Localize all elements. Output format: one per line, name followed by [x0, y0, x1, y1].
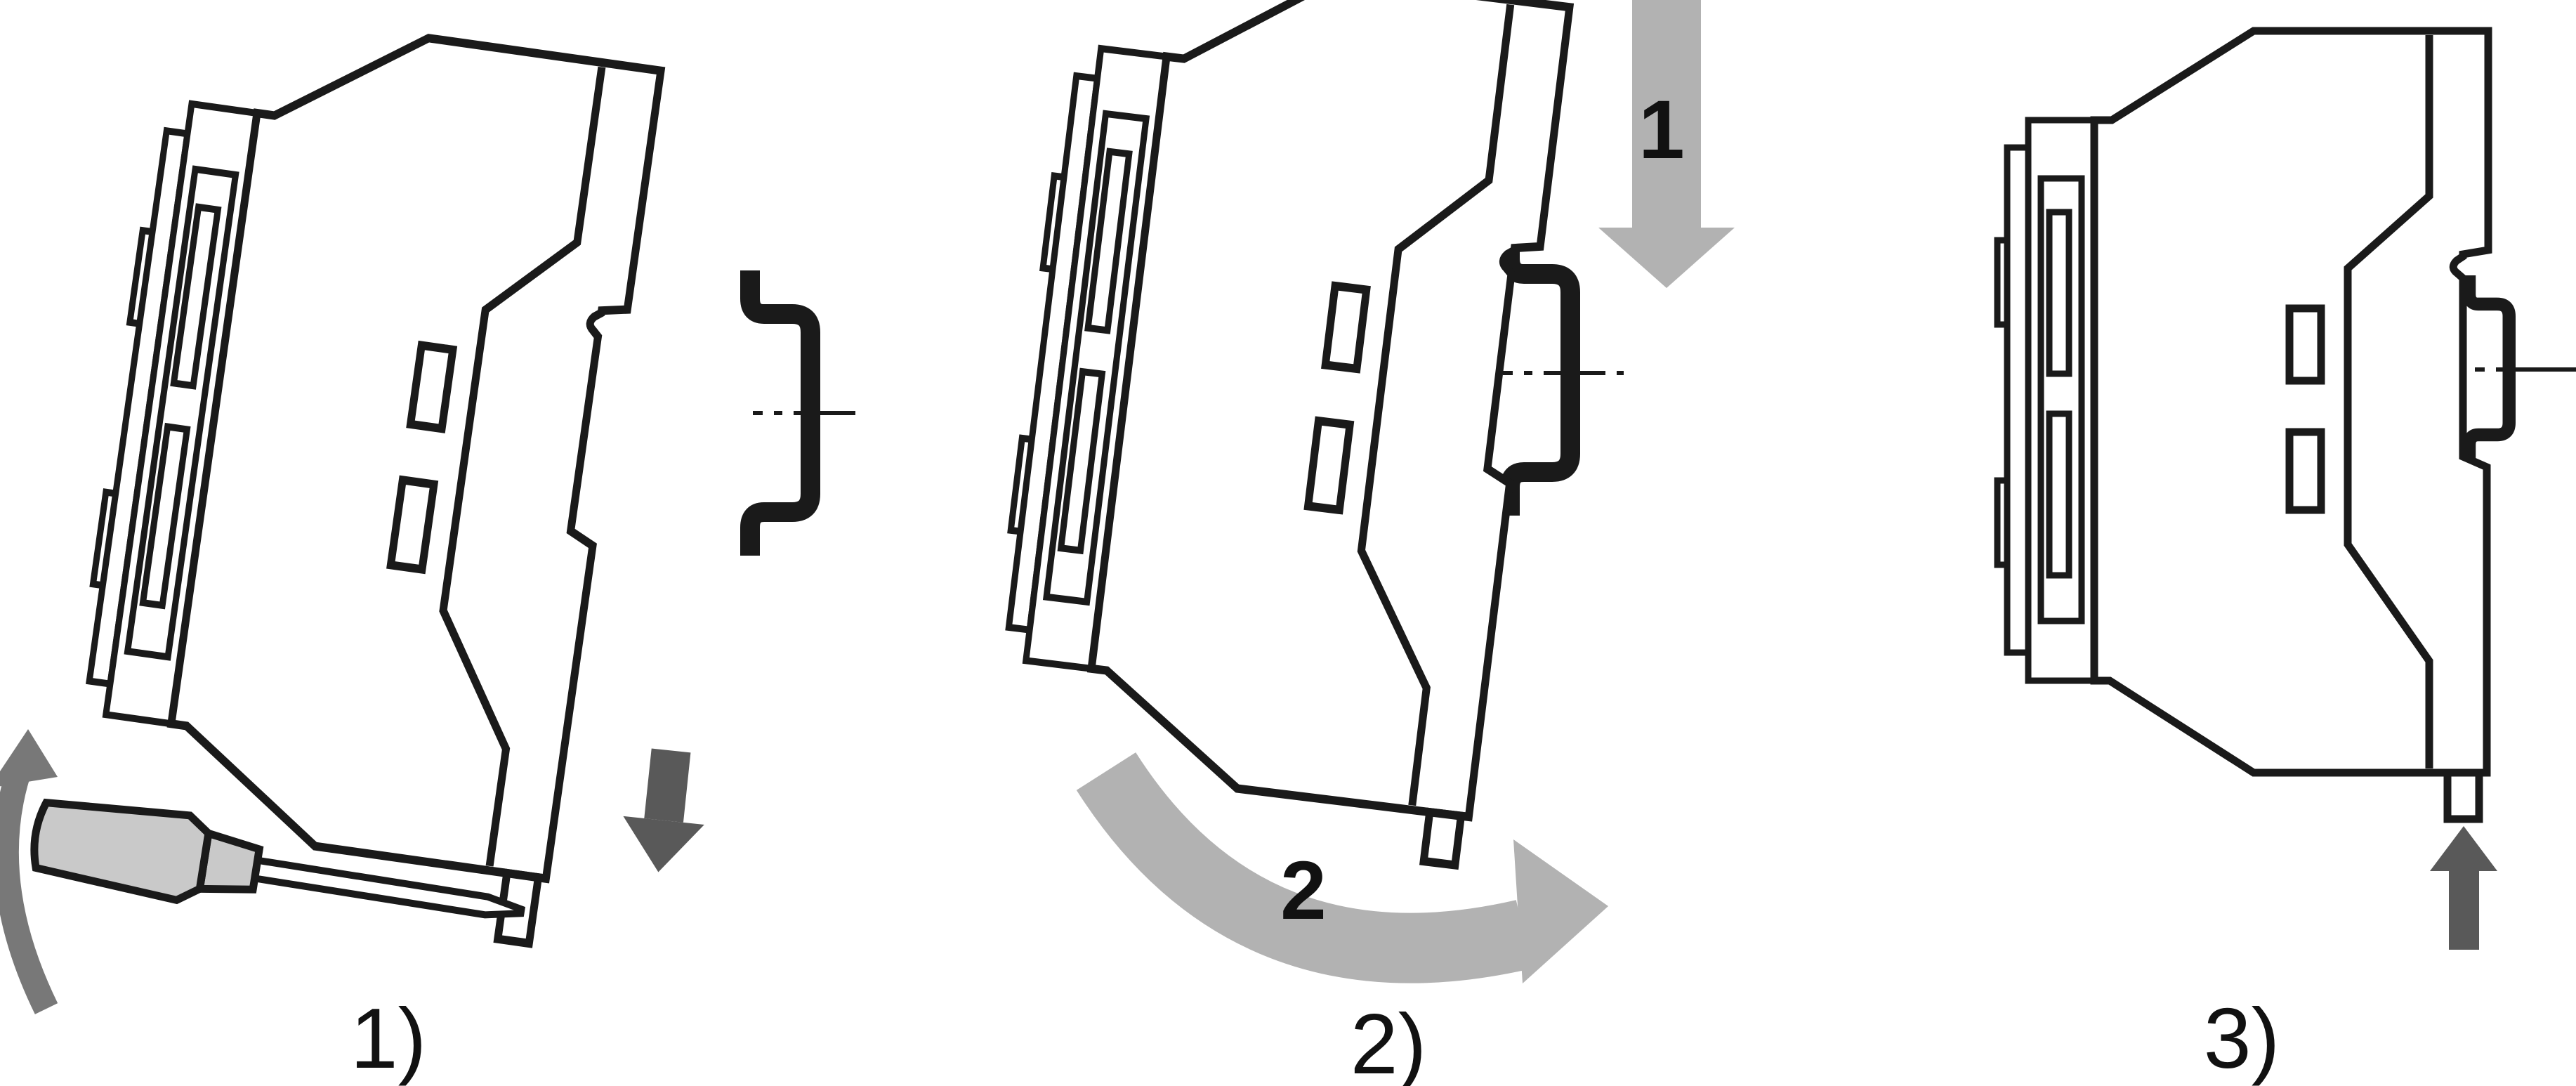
rotate-up-arc-arrowhead [0, 729, 58, 788]
big-down-arrow-icon: 1 [1598, 0, 1735, 288]
up-arrowhead [2430, 826, 2497, 871]
release-latch [2447, 773, 2479, 819]
motion-2-number: 2 [1280, 844, 1327, 937]
latch-down-arrow-icon [618, 746, 712, 876]
motion-1-number: 1 [1638, 84, 1685, 176]
step-2-label: 2) [1351, 996, 1426, 1086]
step-3-label: 3) [2204, 990, 2280, 1086]
step-1-panel: 1) [0, 2, 865, 1086]
latch-down-arrow-shaft [644, 749, 690, 823]
latch-down-arrowhead [618, 816, 704, 877]
mounting-diagram: 1) 1 2 2) [0, 0, 2576, 1086]
up-arrow-shaft [2449, 870, 2479, 950]
screwdriver-handle [29, 792, 211, 904]
push-up-arrow-icon [2430, 826, 2497, 950]
step-2-panel: 1 2 2) [977, 0, 1735, 1086]
release-latch [1424, 812, 1461, 865]
device-module-icon [61, 2, 661, 879]
device-module-icon [983, 0, 1570, 817]
step-3-panel: 3) [1997, 31, 2576, 1086]
swing-arc-arrowhead [1513, 839, 1608, 983]
step-1-label: 1) [350, 990, 426, 1086]
down-arrowhead [1598, 228, 1735, 288]
rotate-up-arc-arrow-icon [6, 764, 46, 1009]
device-module-icon [1997, 31, 2488, 773]
